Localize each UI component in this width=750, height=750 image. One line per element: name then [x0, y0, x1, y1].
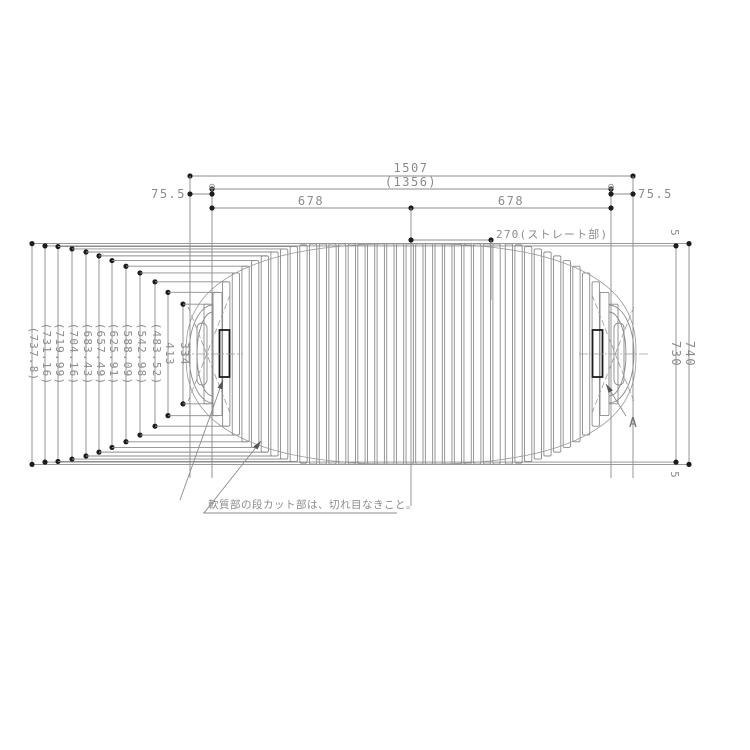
slat: [515, 245, 522, 463]
dim-inner-length: (1356): [385, 175, 437, 189]
slat: [416, 244, 423, 464]
right-handle-grip: [593, 330, 603, 377]
chord-dim-label: 413: [163, 342, 176, 365]
dimension-dot: [209, 205, 214, 210]
detail-label-a: A: [629, 416, 637, 431]
dim-half-left: 678: [298, 194, 324, 208]
slat: [252, 261, 259, 448]
dimension-dot: [29, 462, 34, 467]
slat: [387, 244, 394, 464]
slat: [271, 252, 278, 456]
dim-half-right: 678: [498, 194, 524, 208]
technical-drawing-page: (737.8)(731.16)(719.99)(704.16)(683.43)(…: [0, 0, 750, 750]
chord-dim-label: (542.98): [135, 323, 148, 386]
slat: [493, 244, 500, 464]
slat: [445, 244, 452, 464]
left-cap-cross-line: [187, 295, 230, 404]
slat: [544, 252, 551, 456]
dimension-dot: [187, 191, 192, 196]
dimension-dot: [209, 191, 214, 196]
chord-dim-label: (719.99): [53, 323, 66, 386]
slat: [474, 244, 481, 464]
chord-dim-label: (588.09): [121, 323, 134, 386]
slat: [290, 247, 297, 462]
slat: [281, 249, 288, 459]
chord-dim-label: (483.52): [150, 323, 163, 386]
dim-overall-length: 1507: [394, 161, 429, 175]
chord-dim-label: (683.43): [81, 323, 94, 386]
drawing-geometry: (737.8)(731.16)(719.99)(704.16)(683.43)(…: [27, 173, 692, 513]
bath-lid-drawing: (737.8)(731.16)(719.99)(704.16)(683.43)(…: [0, 0, 750, 750]
slat: [309, 244, 316, 464]
slat: [329, 244, 336, 464]
right-cap-cross-line: [592, 295, 635, 404]
chord-dim-label: (625.91): [107, 323, 120, 386]
grip-leader: [180, 380, 223, 500]
dim-body-width: 730: [669, 341, 683, 367]
dim-overall-width: 740: [683, 341, 697, 367]
chord-dim-label: (731.16): [40, 323, 53, 386]
dimension-dot: [408, 237, 413, 242]
slat: [435, 244, 442, 464]
slat: [358, 244, 365, 464]
slat: [425, 244, 432, 464]
slat: [396, 244, 403, 464]
dimension-dot: [673, 243, 678, 248]
slat: [563, 261, 570, 448]
slat: [261, 256, 268, 452]
dimension-dot: [686, 241, 691, 246]
slat: [534, 249, 541, 459]
dimension-dot: [630, 191, 635, 196]
slat: [483, 244, 490, 464]
chord-dim-label: (737.8): [27, 327, 40, 382]
dimension-dot: [29, 241, 34, 246]
left-handle-grip: [220, 330, 230, 377]
dimension-dot: [608, 191, 613, 196]
dim-end-offset-right: 75.5: [638, 187, 673, 201]
slat: [464, 244, 471, 464]
slat: [406, 244, 413, 464]
chord-dim-label: 334: [178, 342, 191, 365]
dimension-dot: [42, 460, 47, 465]
leader-arrowhead: [218, 380, 223, 389]
slat: [377, 244, 384, 464]
chord-dim-label: (704.16): [67, 323, 80, 386]
dimension-texts: 1507 (1356) 678 678 270(ストレート部) 75.5 75.…: [151, 161, 697, 511]
chord-dim-label: (657.49): [94, 323, 107, 386]
leader-arrowhead: [606, 384, 613, 393]
dimension-dot: [673, 460, 678, 465]
left-cap-cross-line: [187, 304, 230, 413]
dim-edge-gap-bottom: 5: [668, 471, 681, 479]
slat: [367, 244, 374, 464]
dim-straight-section: 270(ストレート部): [496, 227, 608, 241]
slat: [339, 244, 346, 464]
dimension-dot: [686, 462, 691, 467]
note-soft-edge: 軟質部の段カット部は、切れ目なきこと。: [208, 498, 417, 511]
dimension-dot: [42, 243, 47, 248]
slat: [505, 244, 512, 464]
slat: [554, 256, 561, 452]
dim-edge-gap-top: 5: [668, 229, 681, 237]
dimension-dot: [608, 205, 613, 210]
slat: [300, 245, 307, 463]
slat: [525, 247, 532, 462]
slat: [319, 244, 326, 464]
slat: [454, 244, 461, 464]
dim-end-offset-left: 75.5: [151, 187, 186, 201]
slat: [348, 244, 355, 464]
